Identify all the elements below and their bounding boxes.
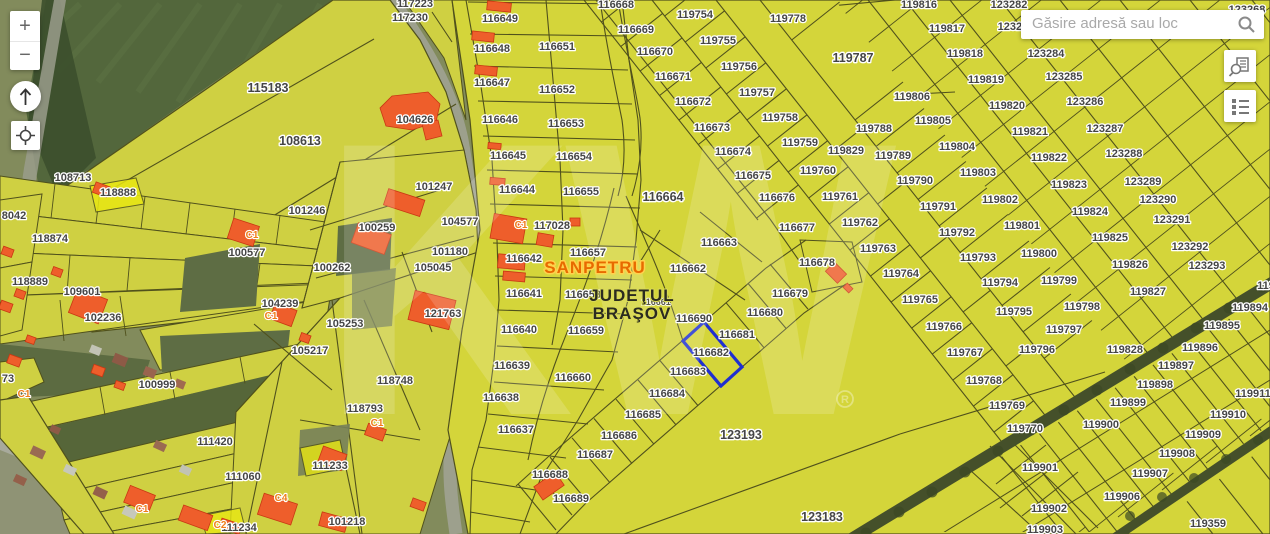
svg-text:119787: 119787 — [832, 51, 873, 65]
svg-text:119794: 119794 — [982, 277, 1019, 289]
svg-text:105217: 105217 — [292, 345, 329, 357]
svg-text:73: 73 — [2, 373, 14, 385]
svg-text:123287: 123287 — [1087, 123, 1124, 135]
svg-text:116672: 116672 — [675, 96, 711, 108]
svg-text:116659: 116659 — [568, 325, 604, 337]
svg-text:119764: 119764 — [883, 268, 920, 280]
svg-text:119758: 119758 — [762, 112, 798, 124]
svg-text:109601: 109601 — [64, 286, 101, 298]
svg-text:101246: 101246 — [289, 205, 326, 217]
svg-text:119817: 119817 — [929, 23, 965, 35]
svg-text:119768: 119768 — [966, 375, 1002, 387]
svg-text:116654: 116654 — [556, 151, 593, 163]
svg-text:116671: 116671 — [655, 71, 691, 83]
svg-text:115183: 115183 — [247, 81, 288, 95]
svg-text:119894: 119894 — [1232, 302, 1269, 314]
svg-text:116647: 116647 — [474, 77, 510, 89]
svg-text:119757: 119757 — [739, 87, 775, 99]
svg-text:116675: 116675 — [735, 170, 771, 182]
svg-text:123286: 123286 — [1067, 96, 1104, 108]
svg-text:119824: 119824 — [1072, 206, 1109, 218]
svg-text:101247: 101247 — [416, 181, 453, 193]
svg-text:C1: C1 — [18, 389, 31, 400]
svg-text:116676: 116676 — [759, 192, 795, 204]
svg-text:C1: C1 — [136, 504, 149, 515]
svg-text:119770: 119770 — [1007, 423, 1043, 435]
svg-text:116686: 116686 — [601, 430, 637, 442]
svg-text:116648: 116648 — [474, 43, 510, 55]
svg-text:105253: 105253 — [327, 318, 364, 330]
svg-text:BRAŞOV: BRAŞOV — [593, 304, 672, 323]
svg-text:119827: 119827 — [1130, 286, 1166, 298]
svg-text:116669: 116669 — [618, 24, 654, 36]
svg-text:116663: 116663 — [701, 237, 737, 249]
svg-text:116644: 116644 — [499, 184, 536, 196]
svg-text:119359: 119359 — [1190, 518, 1226, 530]
svg-text:119798: 119798 — [1064, 301, 1100, 313]
svg-text:121763: 121763 — [425, 308, 462, 320]
svg-text:101180: 101180 — [432, 246, 468, 258]
svg-text:119896: 119896 — [1182, 342, 1218, 354]
svg-text:100577: 100577 — [229, 247, 266, 259]
svg-text:104577: 104577 — [442, 216, 479, 228]
svg-text:123292: 123292 — [1172, 241, 1209, 253]
svg-text:119804: 119804 — [939, 141, 976, 153]
svg-text:119819: 119819 — [968, 74, 1004, 86]
svg-text:123285: 123285 — [1046, 71, 1083, 83]
svg-text:116684: 116684 — [649, 388, 686, 400]
svg-text:JUDEŢUL: JUDEŢUL — [589, 286, 674, 305]
svg-text:119818: 119818 — [947, 48, 983, 60]
svg-text:119762: 119762 — [842, 217, 878, 229]
svg-text:123284: 123284 — [1028, 48, 1066, 60]
svg-text:119906: 119906 — [1104, 491, 1140, 503]
svg-text:C1: C1 — [371, 418, 384, 429]
svg-text:104239: 104239 — [262, 298, 299, 310]
svg-text:119825: 119825 — [1092, 232, 1128, 244]
svg-text:100259: 100259 — [359, 222, 396, 234]
svg-text:116640: 116640 — [501, 324, 537, 336]
svg-text:111233: 111233 — [312, 460, 348, 472]
svg-text:111234: 111234 — [221, 522, 257, 534]
svg-text:116660: 116660 — [555, 372, 591, 384]
svg-text:119766: 119766 — [926, 321, 962, 333]
svg-text:119901: 119901 — [1022, 462, 1058, 474]
svg-text:118889: 118889 — [12, 276, 48, 288]
svg-text:119755: 119755 — [700, 35, 736, 47]
svg-text:119788: 119788 — [856, 123, 892, 135]
svg-text:119: 119 — [1257, 280, 1270, 292]
svg-text:119895: 119895 — [1204, 320, 1240, 332]
svg-text:119828: 119828 — [1107, 344, 1143, 356]
svg-text:119767: 119767 — [947, 347, 983, 359]
svg-text:117028: 117028 — [534, 220, 570, 232]
svg-text:119820: 119820 — [989, 100, 1025, 112]
svg-text:116670: 116670 — [637, 46, 673, 58]
svg-text:119822: 119822 — [1031, 152, 1067, 164]
svg-text:119898: 119898 — [1137, 379, 1173, 391]
svg-text:116685: 116685 — [625, 409, 661, 421]
svg-text:116662: 116662 — [670, 263, 706, 275]
svg-text:119761: 119761 — [822, 191, 858, 203]
svg-text:119763: 119763 — [860, 243, 896, 255]
svg-text:116682: 116682 — [693, 347, 729, 359]
svg-text:119907: 119907 — [1132, 468, 1168, 480]
svg-text:116645: 116645 — [490, 150, 526, 162]
svg-text:116655: 116655 — [563, 186, 599, 198]
svg-text:116641: 116641 — [506, 288, 542, 300]
svg-text:119765: 119765 — [902, 294, 938, 306]
svg-text:123291: 123291 — [1154, 214, 1191, 226]
svg-text:119789: 119789 — [875, 150, 911, 162]
svg-text:108713: 108713 — [55, 172, 92, 184]
svg-text:116642: 116642 — [506, 253, 542, 265]
svg-text:119829: 119829 — [828, 145, 864, 157]
svg-text:116688: 116688 — [532, 469, 568, 481]
svg-text:119805: 119805 — [915, 115, 951, 127]
svg-text:SANPETRU: SANPETRU — [544, 258, 646, 277]
svg-text:119793: 119793 — [960, 252, 996, 264]
svg-text:100999: 100999 — [139, 379, 176, 391]
svg-text:116678: 116678 — [799, 257, 835, 269]
svg-text:C1: C1 — [246, 230, 259, 241]
svg-text:116677: 116677 — [779, 222, 815, 234]
svg-text:C2: C2 — [214, 520, 227, 531]
svg-text:119790: 119790 — [897, 175, 933, 187]
svg-text:C1: C1 — [265, 311, 278, 322]
svg-text:116664: 116664 — [642, 190, 683, 204]
svg-text:119910: 119910 — [1210, 409, 1246, 421]
svg-text:108613: 108613 — [279, 134, 321, 148]
svg-text:116673: 116673 — [694, 122, 730, 134]
svg-text:119792: 119792 — [939, 227, 975, 239]
svg-text:119899: 119899 — [1110, 397, 1146, 409]
svg-text:119756: 119756 — [721, 61, 757, 73]
svg-text:119754: 119754 — [677, 9, 714, 21]
svg-text:123293: 123293 — [1189, 260, 1226, 272]
svg-text:119799: 119799 — [1041, 275, 1077, 287]
svg-text:116674: 116674 — [715, 146, 752, 158]
svg-text:119797: 119797 — [1046, 324, 1082, 336]
svg-text:123288: 123288 — [1106, 148, 1143, 160]
svg-text:119802: 119802 — [982, 194, 1018, 206]
svg-text:118874: 118874 — [32, 233, 69, 245]
svg-text:116653: 116653 — [548, 118, 584, 130]
svg-text:117230: 117230 — [392, 12, 428, 24]
svg-text:119823: 119823 — [1051, 179, 1087, 191]
svg-text:116690: 116690 — [676, 313, 712, 325]
svg-text:119806: 119806 — [894, 91, 930, 103]
svg-text:119903: 119903 — [1027, 524, 1063, 534]
svg-text:116681: 116681 — [719, 329, 755, 341]
svg-text:105045: 105045 — [415, 262, 452, 274]
svg-text:116668: 116668 — [598, 0, 634, 11]
svg-text:116683: 116683 — [670, 366, 706, 378]
svg-text:116652: 116652 — [539, 84, 575, 96]
svg-text:116689: 116689 — [553, 493, 589, 505]
svg-text:119816: 119816 — [901, 0, 937, 11]
svg-text:119801: 119801 — [1004, 220, 1040, 232]
svg-text:123290: 123290 — [1140, 194, 1177, 206]
svg-text:119821: 119821 — [1012, 126, 1048, 138]
svg-text:119795: 119795 — [996, 306, 1032, 318]
svg-text:R: R — [841, 394, 849, 406]
svg-text:C1: C1 — [515, 220, 528, 231]
svg-text:117223: 117223 — [397, 0, 433, 10]
svg-text:119791: 119791 — [920, 201, 956, 213]
svg-text:116638: 116638 — [483, 392, 519, 404]
svg-text:119769: 119769 — [989, 400, 1025, 412]
svg-text:C4: C4 — [275, 493, 288, 504]
svg-text:116649: 116649 — [482, 13, 518, 25]
svg-text:119800: 119800 — [1021, 248, 1057, 260]
svg-text:116680: 116680 — [747, 307, 783, 319]
svg-text:116651: 116651 — [539, 41, 575, 53]
svg-text:116687: 116687 — [577, 449, 613, 461]
svg-text:118748: 118748 — [377, 375, 413, 387]
svg-text:118888: 118888 — [100, 187, 136, 199]
svg-text:119803: 119803 — [960, 167, 996, 179]
svg-text:119897: 119897 — [1158, 360, 1194, 372]
svg-text:111060: 111060 — [225, 471, 261, 483]
svg-text:116679: 116679 — [772, 288, 808, 300]
svg-text:119760: 119760 — [800, 165, 836, 177]
svg-text:8042: 8042 — [2, 210, 26, 222]
svg-text:104626: 104626 — [397, 114, 434, 126]
svg-text:100262: 100262 — [314, 262, 351, 274]
svg-text:119902: 119902 — [1031, 503, 1067, 515]
svg-text:102236: 102236 — [85, 312, 122, 324]
svg-text:119759: 119759 — [782, 137, 818, 149]
svg-text:116646: 116646 — [482, 114, 518, 126]
svg-text:123183: 123183 — [801, 510, 843, 524]
svg-text:119778: 119778 — [770, 13, 806, 25]
svg-text:119908: 119908 — [1159, 448, 1195, 460]
svg-text:111420: 111420 — [197, 436, 233, 448]
svg-text:119826: 119826 — [1112, 259, 1148, 271]
svg-text:119911: 119911 — [1235, 388, 1270, 400]
svg-text:119796: 119796 — [1019, 344, 1055, 356]
svg-text:123289: 123289 — [1125, 176, 1162, 188]
svg-text:119909: 119909 — [1185, 429, 1221, 441]
svg-text:119900: 119900 — [1083, 419, 1119, 431]
svg-text:116639: 116639 — [494, 360, 530, 372]
svg-text:116637: 116637 — [498, 424, 534, 436]
svg-text:123193: 123193 — [720, 428, 762, 442]
svg-text:118793: 118793 — [347, 403, 383, 415]
svg-text:101218: 101218 — [329, 516, 366, 528]
